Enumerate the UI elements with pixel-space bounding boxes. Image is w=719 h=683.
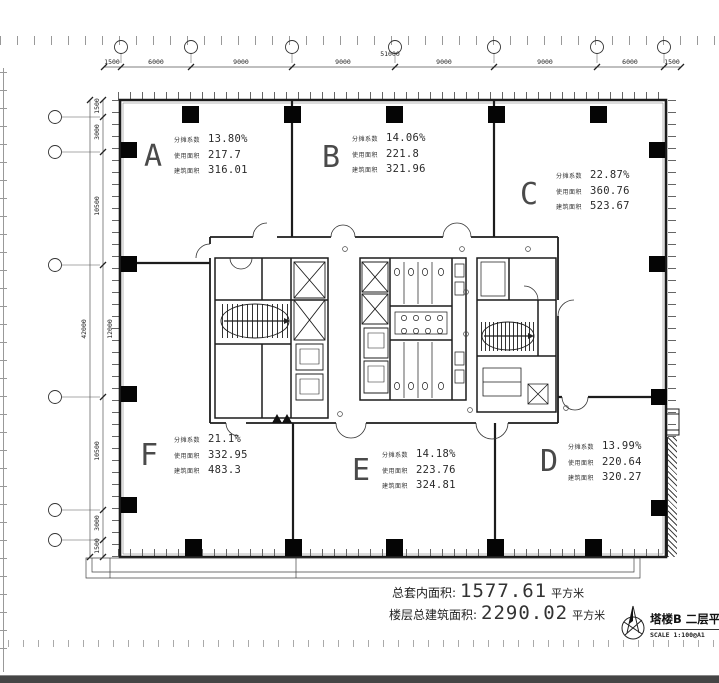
zone-c-coef-label: 分摊系数 (556, 171, 584, 180)
title-underline (650, 629, 719, 630)
zone-b-info: 分摊系数14.06% 使用面积221.8 建筑面积321.96 (352, 132, 426, 179)
floor-plan-page: 51000 1500 6000 9000 9000 9000 9000 6000… (0, 0, 719, 683)
net-area-row: 总套内面积: 1577.61 平方米 (392, 580, 584, 602)
net-area-unit: 平方米 (551, 585, 584, 601)
dim-top-6: 6000 (622, 58, 638, 66)
drawing-title: 塔楼B 二层平面 (650, 611, 719, 627)
drain-markers (338, 247, 569, 417)
zone-a-usable: 217.7 (208, 149, 241, 161)
zone-f-usable-label: 使用面积 (174, 451, 202, 460)
zone-a-letter: A (144, 142, 162, 172)
dim-top-3: 9000 (335, 58, 351, 66)
dim-top-4: 9000 (436, 58, 452, 66)
zone-e-coef-label: 分摊系数 (382, 450, 410, 459)
zone-b-built: 321.96 (386, 163, 426, 175)
zone-d-coef: 13.99% (602, 440, 642, 452)
zone-e-usable-label: 使用面积 (382, 466, 410, 475)
zone-f-coef: 21.1% (208, 433, 241, 445)
north-arrow-icon (616, 602, 650, 644)
zone-d-built: 320.27 (602, 471, 642, 483)
dim-left-2: 10500 (93, 191, 101, 221)
zone-c-usable: 360.76 (590, 185, 630, 197)
zone-f-letter: F (140, 441, 158, 471)
zone-e-coef: 14.18% (416, 448, 456, 460)
zone-d-coef-label: 分摊系数 (568, 442, 596, 451)
zone-c-coef: 22.87% (590, 169, 630, 181)
zone-a-info: 分摊系数13.80% 使用面积217.7 建筑面积316.01 (174, 133, 248, 180)
dim-left-4: 10500 (93, 436, 101, 466)
dim-total-height: 42000 (80, 314, 88, 344)
zone-b-letter: B (322, 143, 340, 173)
gross-area-unit: 平方米 (572, 607, 605, 623)
zone-d-info: 分摊系数13.99% 使用面积220.64 建筑面积320.27 (568, 440, 642, 487)
podium-canopy (86, 558, 640, 578)
zone-c-letter: C (520, 180, 538, 210)
zone-d-usable-label: 使用面积 (568, 458, 596, 467)
zone-c-usable-label: 使用面积 (556, 187, 584, 196)
drawing-scale: SCALE 1:100@A1 (650, 631, 705, 639)
zone-a-built-label: 建筑面积 (174, 166, 202, 175)
zone-f-built-label: 建筑面积 (174, 466, 202, 475)
dim-top-1: 6000 (148, 58, 164, 66)
dim-top-2: 9000 (233, 58, 249, 66)
zone-c-built-label: 建筑面积 (556, 202, 584, 211)
bottom-band (0, 675, 719, 683)
zone-d-usable: 220.64 (602, 456, 642, 468)
gross-area-label: 楼层总建筑面积: (389, 606, 477, 623)
zone-e-built-label: 建筑面积 (382, 481, 410, 490)
zone-a-built: 316.01 (208, 164, 248, 176)
net-area-value: 1577.61 (460, 580, 547, 602)
net-area-label: 总套内面积: (392, 584, 456, 601)
dim-left-6: 1500 (93, 531, 101, 561)
zone-b-coef: 14.06% (386, 132, 426, 144)
zone-b-usable: 221.8 (386, 148, 419, 160)
zone-a-usable-label: 使用面积 (174, 151, 202, 160)
zone-e-letter: E (352, 456, 370, 486)
gross-area-row: 楼层总建筑面积: 2290.02 平方米 (389, 602, 605, 624)
zone-c-info: 分摊系数22.87% 使用面积360.76 建筑面积523.67 (556, 169, 630, 216)
zone-d-built-label: 建筑面积 (568, 473, 596, 482)
zone-b-coef-label: 分摊系数 (352, 134, 380, 143)
zone-e-usable: 223.76 (416, 464, 456, 476)
zone-f-usable: 332.95 (208, 449, 248, 461)
zone-f-built: 483.3 (208, 464, 241, 476)
zone-c-built: 523.67 (590, 200, 630, 212)
zone-e-info: 分摊系数14.18% 使用面积223.76 建筑面积324.81 (382, 448, 456, 495)
zone-b-built-label: 建筑面积 (352, 165, 380, 174)
zone-b-usable-label: 使用面积 (352, 150, 380, 159)
dim-total-width: 51000 (380, 50, 400, 58)
gross-area-value: 2290.02 (481, 602, 568, 624)
zone-d-letter: D (540, 447, 558, 477)
door-swings (196, 223, 588, 439)
dim-left-1: 3000 (93, 117, 101, 147)
dim-left-3: 12000 (106, 314, 114, 344)
dim-top-0: 1500 (104, 58, 120, 66)
dim-top-7: 1500 (664, 58, 680, 66)
zone-f-info: 分摊系数21.1% 使用面积332.95 建筑面积483.3 (174, 433, 248, 480)
zone-f-coef-label: 分摊系数 (174, 435, 202, 444)
dim-top-5: 9000 (537, 58, 553, 66)
zone-e-built: 324.81 (416, 479, 456, 491)
zone-a-coef-label: 分摊系数 (174, 135, 202, 144)
zone-a-coef: 13.80% (208, 133, 248, 145)
